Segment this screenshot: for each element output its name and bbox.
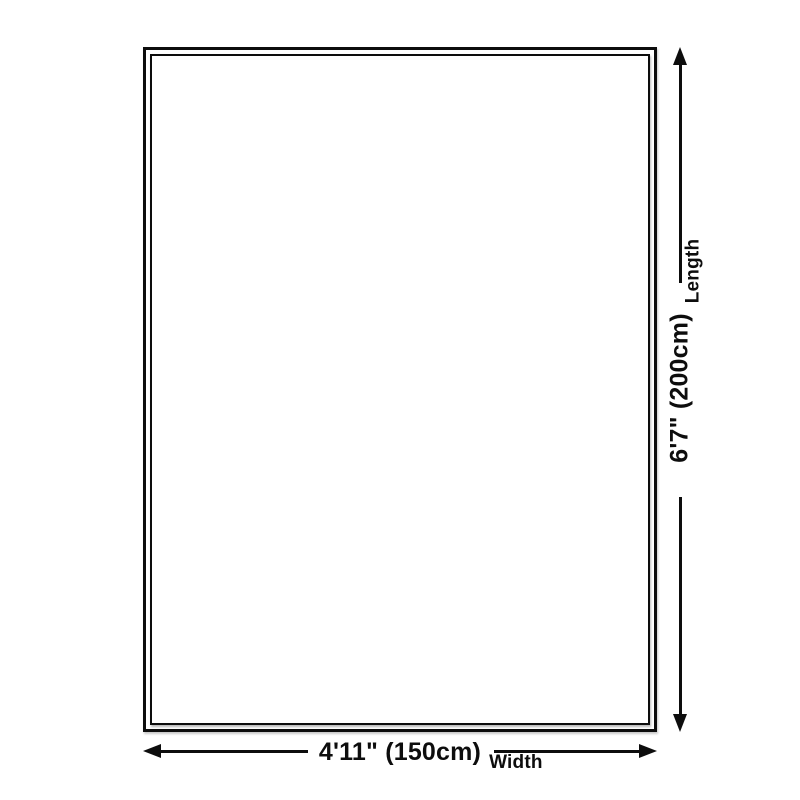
length-line-lower	[679, 497, 682, 714]
length-label: Length	[683, 239, 705, 304]
width-label: Width	[489, 752, 543, 774]
arrow-right-icon	[639, 744, 657, 758]
width-value: 4'11" (150cm)Width	[319, 738, 481, 767]
rug-inner-border	[150, 54, 650, 725]
width-line-right	[494, 750, 640, 753]
arrow-left-icon	[143, 744, 161, 758]
rug-outline	[143, 47, 657, 732]
arrow-down-icon	[673, 714, 687, 732]
rug-size-diagram: 6'7" (200cm)Length 4'11" (150cm)Width	[0, 0, 800, 800]
length-line-upper	[679, 63, 682, 283]
width-label-group: 4'11" (150cm)Width	[319, 738, 481, 767]
length-value: 6'7" (200cm)Length	[666, 313, 695, 462]
width-line-left	[160, 750, 308, 753]
